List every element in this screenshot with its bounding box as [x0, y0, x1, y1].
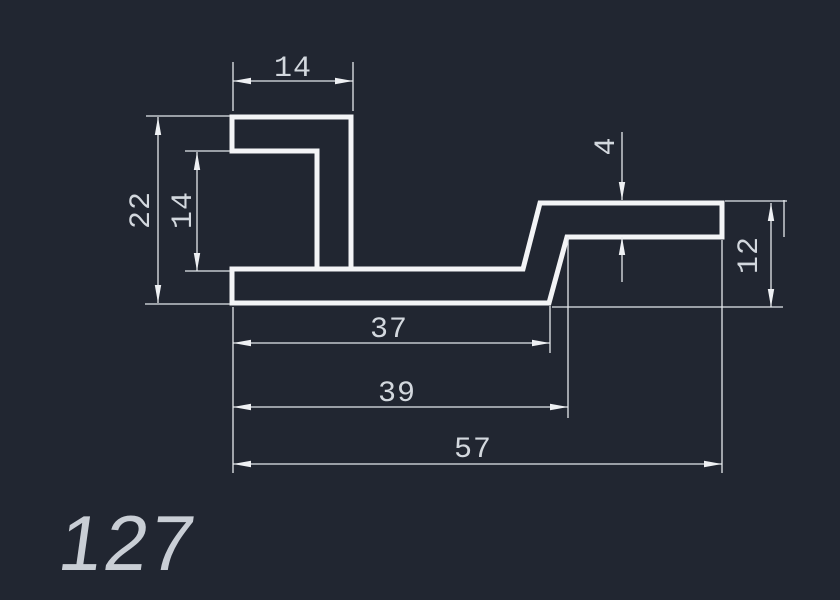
arrowhead-up: [155, 117, 161, 135]
dim-label-flange-thickness: 4: [590, 136, 624, 155]
dim-label-mid-length: 39: [378, 377, 416, 411]
dim-right-end-height: 12: [552, 200, 787, 307]
arrowhead-left: [233, 461, 251, 467]
dim-label-top-flange-width: 14: [274, 52, 312, 86]
dim-opening-height: 14: [167, 151, 230, 271]
dim-bottom-length: 37: [233, 306, 550, 353]
arrowhead-right: [704, 461, 722, 467]
dim-label-overall-height: 22: [125, 191, 159, 229]
cad-drawing-canvas: 14 22 14 4 12: [0, 0, 840, 600]
arrowhead-down: [155, 285, 161, 303]
arrowhead-up: [768, 203, 774, 221]
arrowhead-down: [194, 253, 200, 271]
profile-outline: [232, 117, 722, 303]
arrowhead-right: [532, 340, 550, 346]
arrowhead-up: [194, 152, 200, 170]
dim-label-overall-length: 57: [454, 433, 492, 467]
dim-label-opening-height: 14: [167, 191, 201, 229]
arrowhead-left: [233, 404, 251, 410]
arrowhead-up: [619, 237, 625, 255]
dim-flange-thickness: 4: [590, 132, 625, 282]
arrowhead-right: [550, 404, 568, 410]
arrowhead-left: [233, 78, 251, 84]
dim-overall-length: 57: [233, 240, 722, 473]
dim-label-bottom-length: 37: [370, 313, 408, 347]
arrowhead-down: [768, 289, 774, 307]
dim-top-flange-width: 14: [233, 52, 353, 111]
profile-path: [232, 117, 722, 303]
arrowhead-left: [233, 340, 251, 346]
arrowhead-down: [619, 182, 625, 200]
dim-label-right-end-height: 12: [733, 236, 767, 274]
part-number-label: 127: [54, 499, 202, 587]
arrowhead-right: [335, 78, 353, 84]
